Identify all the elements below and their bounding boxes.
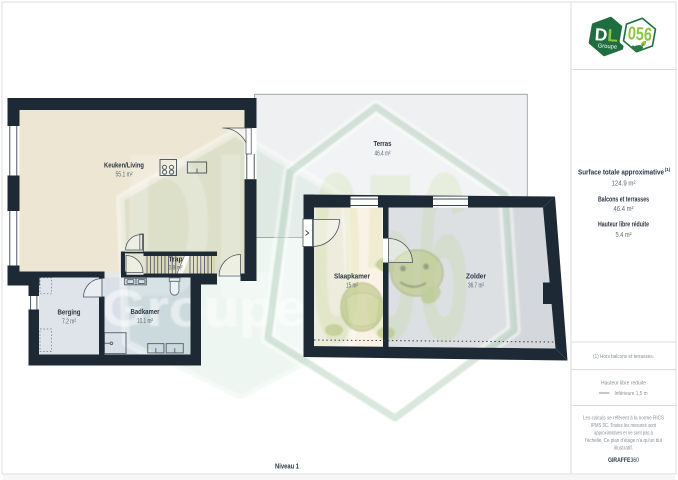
svg-text:Terras: Terras <box>374 139 392 148</box>
svg-text:Keuken/Living: Keuken/Living <box>104 161 144 170</box>
svg-text:Trap: Trap <box>169 257 183 264</box>
svg-text:Niveau 1: Niveau 1 <box>275 462 299 471</box>
svg-text:Slaapkamer: Slaapkamer <box>334 272 370 281</box>
svg-text:10.1 m²: 10.1 m² <box>137 318 153 325</box>
svg-text:46.4 m²: 46.4 m² <box>614 206 635 213</box>
svg-text:IPMS 3C. Toutes les mesures so: IPMS 3C. Toutes les mesures sont <box>591 423 656 429</box>
svg-text:Les calculs se réfèrent à la n: Les calculs se réfèrent à la norme RICS <box>583 416 664 422</box>
svg-text:36.7 m²: 36.7 m² <box>468 283 484 290</box>
svg-text:Hauteur libre réduite: Hauteur libre réduite <box>601 381 646 387</box>
svg-text:(1) Hors balcons et terrasses.: (1) Hors balcons et terrasses. <box>593 354 654 360</box>
svg-text:l'échelle. Ce plan d'étage n'a: l'échelle. Ce plan d'étage n'a qu'un but <box>585 438 662 444</box>
svg-text:Surface totale approximative: Surface totale approximative <box>578 168 664 177</box>
svg-text:Hauteur libre réduite: Hauteur libre réduite <box>598 221 649 228</box>
svg-text:Badkamer: Badkamer <box>131 307 160 316</box>
svg-text:5.4 m²: 5.4 m² <box>616 232 633 239</box>
svg-text:GIRAFFE360: GIRAFFE360 <box>608 457 639 464</box>
svg-text:0.8 m²: 0.8 m² <box>169 265 184 272</box>
svg-text:15 m²: 15 m² <box>346 283 358 290</box>
svg-text:illustratif.: illustratif. <box>614 446 633 452</box>
svg-text:55.1 m²: 55.1 m² <box>116 172 133 179</box>
svg-text:056: 056 <box>627 22 652 45</box>
svg-text:46.4 m²: 46.4 m² <box>375 151 391 158</box>
svg-text:Zolder: Zolder <box>466 272 486 281</box>
svg-text:Balcons et terrasses: Balcons et terrasses <box>598 196 649 203</box>
svg-text:Inférieure 1,5 m: Inférieure 1,5 m <box>615 391 648 397</box>
svg-text:(1): (1) <box>665 167 671 172</box>
svg-text:approximatives et ne sont pas: approximatives et ne sont pas à <box>594 431 654 437</box>
svg-text:124.9 m²: 124.9 m² <box>612 178 636 187</box>
svg-text:Berging: Berging <box>58 308 81 317</box>
svg-text:7.2 m²: 7.2 m² <box>62 319 76 326</box>
